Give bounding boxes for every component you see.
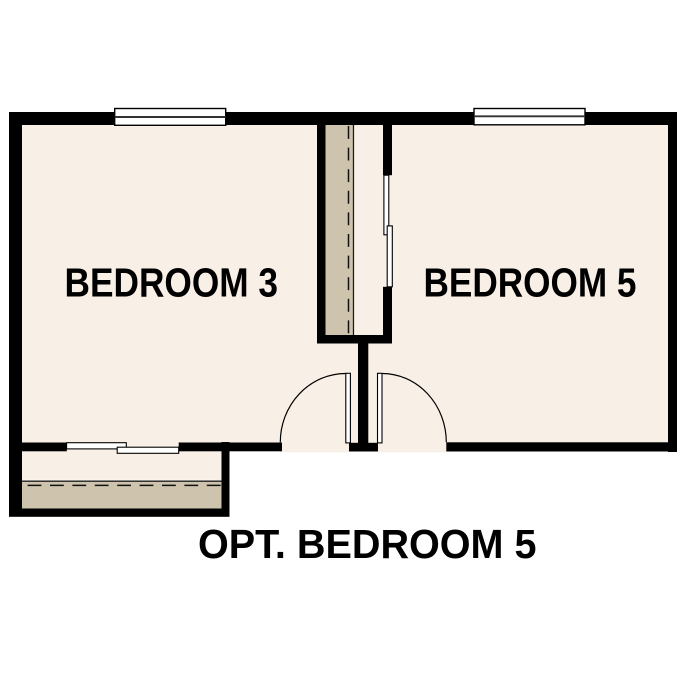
svg-text:BEDROOM 3: BEDROOM 3	[65, 260, 279, 306]
svg-text:OPT. BEDROOM 5: OPT. BEDROOM 5	[198, 521, 537, 567]
svg-text:BEDROOM 5: BEDROOM 5	[424, 260, 637, 306]
